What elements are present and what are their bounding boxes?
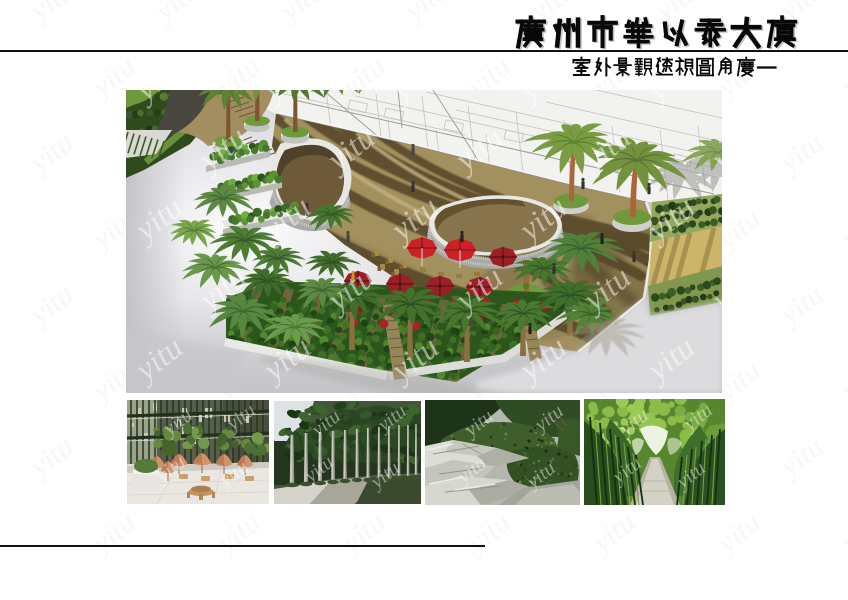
svg-text:yitu: yitu <box>709 506 767 562</box>
svg-text:yitu: yitu <box>22 430 80 486</box>
svg-text:yitu: yitu <box>772 126 830 182</box>
svg-text:yitu: yitu <box>22 126 80 182</box>
svg-text:yitu: yitu <box>772 430 830 486</box>
svg-text:yitu: yitu <box>334 506 392 562</box>
svg-text:yitu: yitu <box>834 202 848 258</box>
svg-text:yitu: yitu <box>84 506 142 562</box>
svg-text:yitu: yitu <box>772 278 830 334</box>
svg-text:yitu: yitu <box>834 354 848 410</box>
svg-text:yitu: yitu <box>209 506 267 562</box>
svg-text:yitu: yitu <box>22 278 80 334</box>
svg-text:yitu: yitu <box>459 506 517 562</box>
svg-text:yitu: yitu <box>584 506 642 562</box>
svg-text:yitu: yitu <box>834 506 848 562</box>
